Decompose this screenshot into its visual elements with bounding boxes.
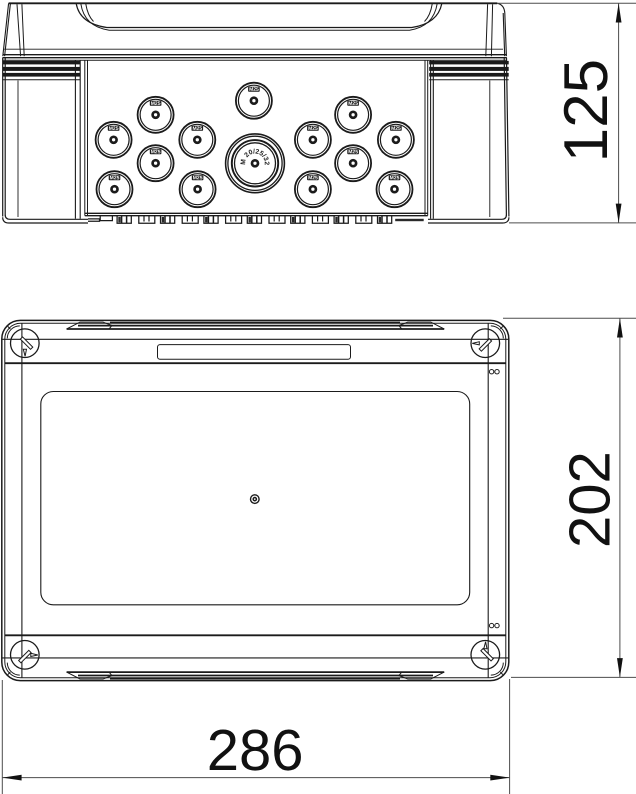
svg-text:202: 202 <box>557 451 622 548</box>
svg-text:286: 286 <box>207 718 304 783</box>
svg-text:125: 125 <box>552 59 621 162</box>
